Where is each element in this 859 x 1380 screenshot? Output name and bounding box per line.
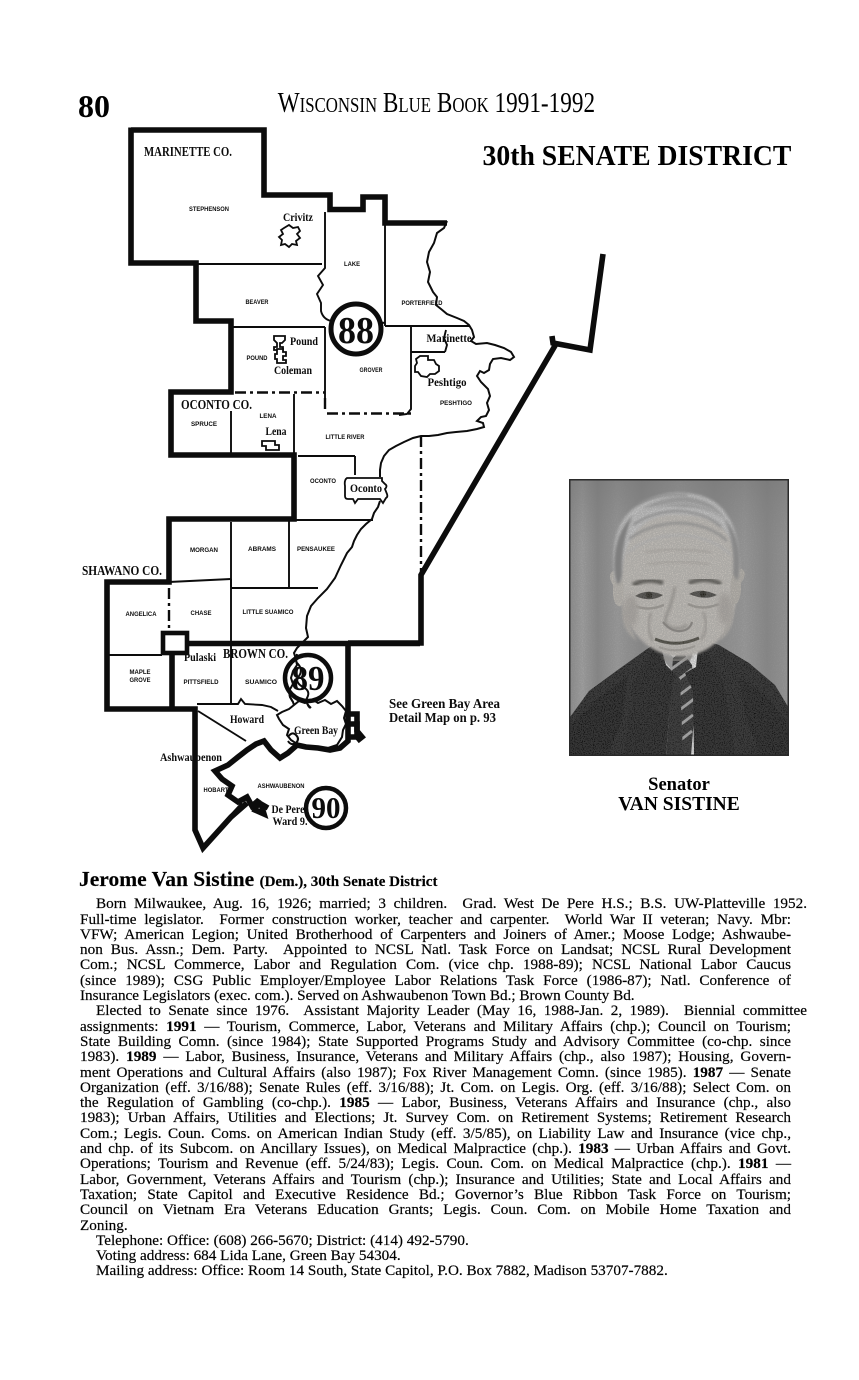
svg-text:MARINETTE CO.: MARINETTE CO. [144, 145, 232, 160]
svg-text:Pulaski: Pulaski [184, 652, 217, 664]
svg-text:PESHTIGO: PESHTIGO [440, 400, 472, 407]
svg-text:STEPHENSON: STEPHENSON [189, 206, 229, 213]
svg-text:PENSAUKEE: PENSAUKEE [297, 546, 335, 553]
svg-text:See Green Bay Area: See Green Bay Area [389, 696, 500, 711]
svg-text:Detail Map on p. 93: Detail Map on p. 93 [389, 710, 496, 725]
svg-text:SUAMICO: SUAMICO [245, 679, 277, 686]
svg-text:Marinette: Marinette [427, 333, 472, 345]
svg-text:Coleman: Coleman [274, 365, 313, 377]
svg-text:ANGELICA: ANGELICA [126, 611, 157, 618]
svg-text:OCONTO: OCONTO [310, 478, 336, 485]
svg-text:OCONTO CO.: OCONTO CO. [181, 398, 252, 413]
svg-text:Lena: Lena [266, 426, 287, 438]
svg-text:SHAWANO CO.: SHAWANO CO. [82, 563, 162, 578]
svg-text:BROWN CO.: BROWN CO. [223, 647, 288, 662]
svg-text:Green Bay: Green Bay [294, 725, 338, 737]
svg-text:POUND: POUND [247, 355, 268, 362]
svg-text:Pound: Pound [290, 336, 319, 348]
svg-text:BEAVER: BEAVER [246, 299, 269, 306]
svg-text:SPRUCE: SPRUCE [191, 421, 217, 428]
svg-text:LAKE: LAKE [344, 261, 360, 268]
svg-text:HOBART: HOBART [204, 787, 230, 794]
svg-text:Crivitz: Crivitz [283, 212, 313, 224]
svg-text:LITTLE RIVER: LITTLE RIVER [326, 434, 365, 441]
svg-text:De Pere: De Pere [272, 804, 305, 816]
svg-text:Ashwaubenon: Ashwaubenon [160, 752, 223, 764]
svg-text:90: 90 [312, 790, 341, 825]
svg-text:Oconto: Oconto [350, 483, 382, 495]
svg-text:LITTLE SUAMICO: LITTLE SUAMICO [243, 609, 294, 616]
svg-text:Ward 9.: Ward 9. [273, 816, 308, 828]
svg-text:GROVER: GROVER [360, 367, 383, 374]
svg-text:PORTERFIELD: PORTERFIELD [402, 300, 443, 307]
svg-text:LENA: LENA [260, 413, 277, 420]
svg-text:PITTSFIELD: PITTSFIELD [184, 679, 219, 686]
svg-text:ASHWAUBENON: ASHWAUBENON [258, 783, 305, 790]
svg-text:Peshtigo: Peshtigo [428, 377, 467, 389]
svg-text:88: 88 [338, 310, 374, 352]
svg-text:MORGAN: MORGAN [190, 547, 218, 554]
svg-text:ABRAMS: ABRAMS [248, 546, 276, 553]
svg-text:Howard: Howard [230, 714, 265, 726]
svg-text:89: 89 [292, 659, 325, 698]
svg-text:CHASE: CHASE [191, 610, 212, 617]
svg-text:GROVE: GROVE [130, 677, 151, 684]
svg-text:MAPLE: MAPLE [130, 669, 151, 676]
